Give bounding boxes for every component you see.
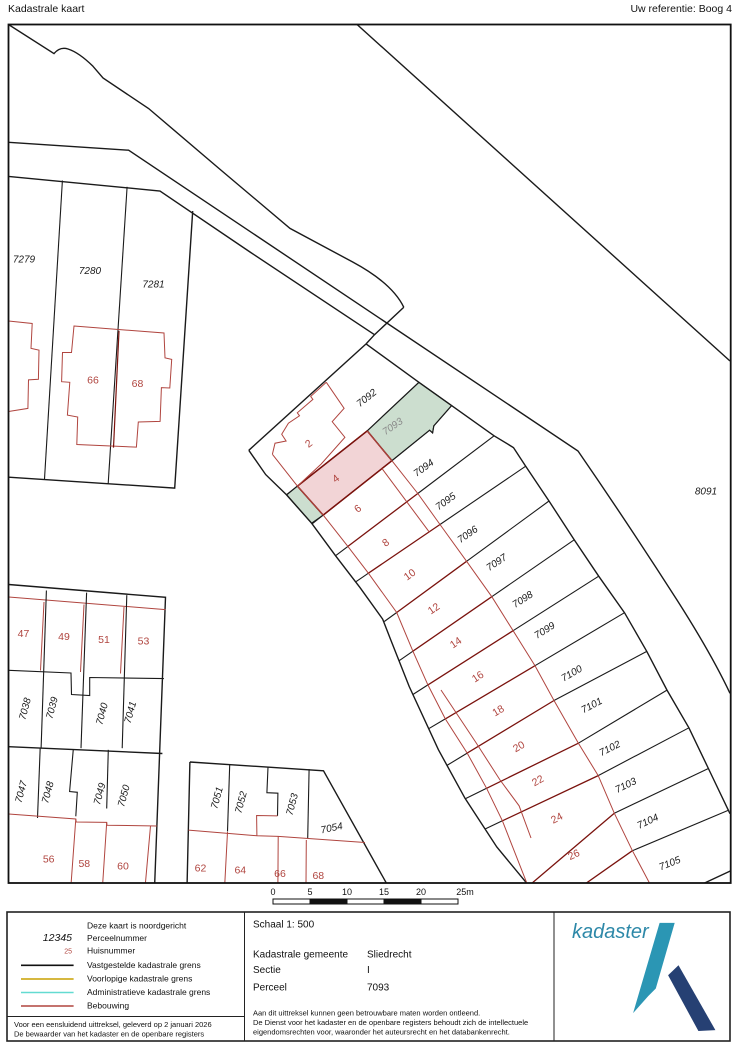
svg-text:Kadastrale gemeente: Kadastrale gemeente: [253, 950, 349, 961]
svg-text:20: 20: [416, 887, 426, 897]
svg-text:eigendomsrechten voor, waarond: eigendomsrechten voor, waaronder het aut…: [253, 1028, 510, 1037]
svg-text:I: I: [367, 965, 370, 976]
svg-text:Uw referentie: Boog 4: Uw referentie: Boog 4: [630, 3, 732, 15]
svg-text:25: 25: [64, 949, 72, 956]
svg-text:15: 15: [379, 887, 389, 897]
svg-text:Schaal 1: 500: Schaal 1: 500: [253, 920, 315, 931]
svg-text:Perceelnummer: Perceelnummer: [87, 933, 147, 943]
svg-text:Vastgestelde kadastrale grens: Vastgestelde kadastrale grens: [87, 960, 201, 970]
svg-text:53: 53: [138, 636, 150, 648]
svg-text:49: 49: [58, 631, 70, 643]
svg-text:De bewaarder van het kadaster: De bewaarder van het kadaster en de open…: [14, 1030, 204, 1039]
svg-text:56: 56: [43, 854, 55, 866]
svg-text:7281: 7281: [142, 280, 164, 291]
svg-text:7280: 7280: [79, 266, 102, 277]
svg-text:Aan dit uittreksel kunnen geen: Aan dit uittreksel kunnen geen betrouwba…: [253, 1009, 480, 1018]
svg-text:68: 68: [312, 870, 324, 882]
svg-text:64: 64: [234, 865, 246, 877]
svg-text:Sliedrecht: Sliedrecht: [367, 950, 412, 961]
svg-text:Huisnummer: Huisnummer: [87, 946, 135, 956]
svg-text:25m: 25m: [456, 887, 474, 897]
svg-text:47: 47: [18, 628, 30, 640]
svg-text:10: 10: [342, 887, 352, 897]
svg-text:66: 66: [274, 868, 286, 880]
svg-text:12345: 12345: [43, 932, 72, 944]
svg-text:62: 62: [195, 863, 207, 875]
svg-text:Kadastrale kaart: Kadastrale kaart: [8, 3, 85, 15]
svg-text:68: 68: [132, 378, 144, 390]
svg-text:Bebouwing: Bebouwing: [87, 1001, 129, 1011]
svg-text:De Dienst voor het kadaster en: De Dienst voor het kadaster en de openba…: [253, 1018, 528, 1027]
svg-text:0: 0: [270, 887, 275, 897]
svg-text:7279: 7279: [13, 255, 36, 266]
svg-text:7093: 7093: [367, 983, 390, 994]
svg-text:Sectie: Sectie: [253, 965, 281, 976]
svg-text:kadaster: kadaster: [572, 921, 650, 943]
svg-text:Voor een eensluidend uittrekse: Voor een eensluidend uittreksel, gelever…: [14, 1020, 212, 1029]
svg-text:8091: 8091: [695, 487, 717, 498]
svg-text:Deze kaart is noordgericht: Deze kaart is noordgericht: [87, 921, 187, 931]
svg-text:Administratieve kadastrale gre: Administratieve kadastrale grens: [87, 987, 210, 997]
svg-text:66: 66: [87, 375, 99, 387]
svg-text:Voorlopige kadastrale grens: Voorlopige kadastrale grens: [87, 974, 192, 984]
svg-text:5: 5: [307, 887, 312, 897]
svg-text:Perceel: Perceel: [253, 983, 287, 994]
svg-text:60: 60: [117, 861, 129, 873]
svg-text:58: 58: [78, 858, 90, 870]
svg-text:51: 51: [98, 634, 110, 646]
